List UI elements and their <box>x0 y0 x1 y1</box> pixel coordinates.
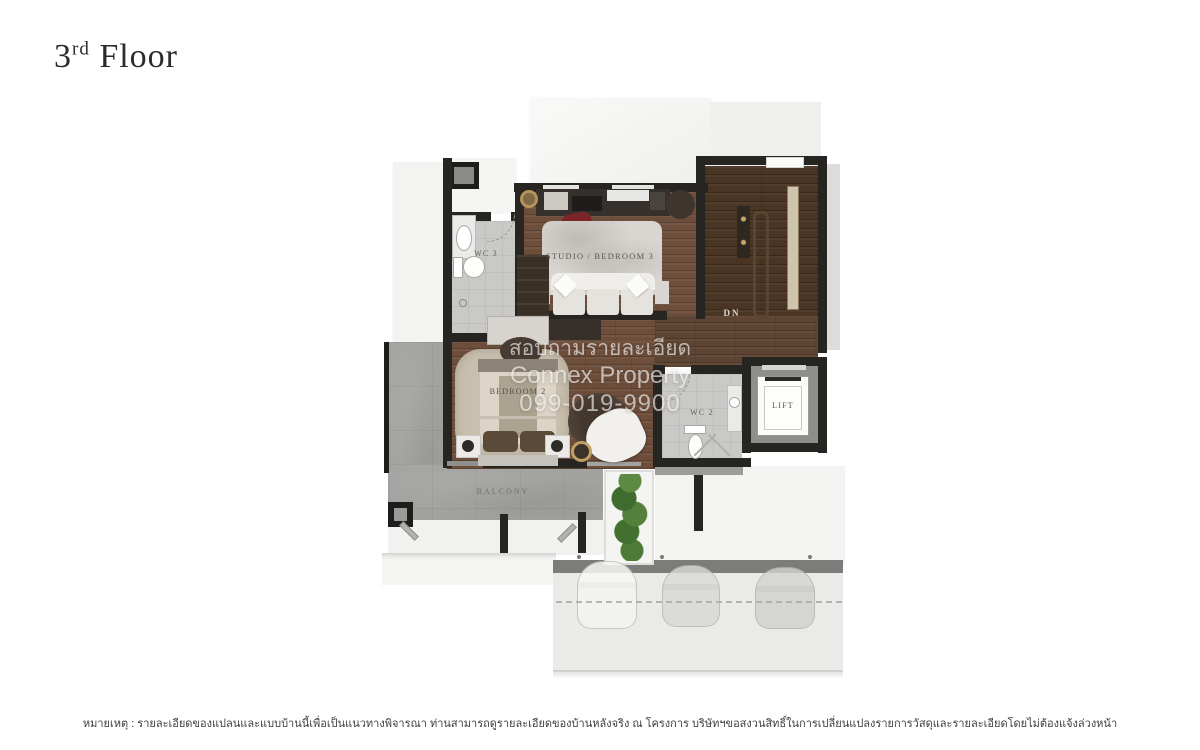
planter-greenery <box>610 474 650 561</box>
keyboard <box>572 196 602 211</box>
roof-left-wing <box>393 162 445 344</box>
room-label-studio-bedroom3: STUDIO / BEDROOM 3 <box>535 251 665 261</box>
watermark-line-phone: 099-019-9900 <box>440 390 760 418</box>
duct-shaft-box <box>449 162 479 189</box>
column-dot <box>808 555 812 559</box>
shower-drain <box>459 299 467 307</box>
planter-box <box>604 470 654 565</box>
title-number: 3 <box>54 38 72 75</box>
car-top-view <box>755 567 815 629</box>
wall <box>698 156 827 165</box>
building-side-strip <box>827 164 840 350</box>
room-label-wc3: WC 3 <box>458 249 514 258</box>
wall <box>653 458 751 467</box>
bed-pillow <box>483 431 518 452</box>
room-label-stairs-dn: DN <box>714 308 750 318</box>
wall <box>818 357 827 453</box>
sofa-cushion <box>587 289 619 315</box>
column-dot <box>577 555 581 559</box>
wardrobe <box>517 255 549 317</box>
driveway-shadow <box>553 670 843 679</box>
watermark-line-brand: Connex Property <box>440 362 760 390</box>
desk-item <box>544 192 568 210</box>
car-top-view <box>662 565 720 627</box>
bed-bench <box>478 455 558 466</box>
room-label-balcony: BALCONY <box>460 487 546 496</box>
wall-stub <box>578 512 586 553</box>
desk-item <box>650 192 665 210</box>
washbasin <box>456 225 472 251</box>
car-top-view <box>577 561 637 629</box>
plan-tag-box <box>766 157 804 168</box>
terrace-edge-band <box>655 467 743 475</box>
side-table-gold <box>520 190 538 208</box>
lift-door-gap <box>762 365 806 370</box>
accent-table <box>571 441 592 462</box>
toilet-tank <box>684 425 706 434</box>
toilet-tank <box>453 257 463 278</box>
room-label-lift: LIFT <box>757 401 809 410</box>
footer-disclaimer: หมายเหตุ : รายละเอียดของแปลนและแบบบ้านนี… <box>0 714 1200 732</box>
wall <box>696 156 705 319</box>
desk-item <box>607 190 649 201</box>
floor-plan-page: 3rd Floor <box>0 0 1200 750</box>
plot-dashed-line <box>556 601 842 603</box>
wall-stub <box>694 467 703 531</box>
page-title: 3rd Floor <box>54 38 178 76</box>
balcony-railing <box>384 342 389 473</box>
terrace-lower-right <box>655 466 845 565</box>
stair-handrail <box>753 211 769 318</box>
roof-upper-main <box>531 98 711 186</box>
toilet-bowl <box>463 256 485 278</box>
table-lamp <box>551 440 563 452</box>
wall <box>443 158 452 468</box>
wall <box>818 156 827 353</box>
table-lamp <box>462 440 474 452</box>
watermark-line-thai: สอบถามรายละเอียด <box>440 336 760 362</box>
title-word: Floor <box>99 38 178 75</box>
wall-stub <box>500 514 508 553</box>
round-ottoman <box>666 190 695 219</box>
lower-slab-left <box>382 553 556 585</box>
title-ordinal: rd <box>72 39 90 60</box>
wall-console <box>737 206 750 258</box>
sofa-side-table <box>655 281 669 304</box>
wall <box>742 443 827 452</box>
stair-screen-rail <box>787 186 799 310</box>
sliding-glass-door <box>587 462 641 466</box>
column-dot <box>660 555 664 559</box>
watermark: สอบถามรายละเอียด Connex Property 099-019… <box>440 336 760 418</box>
lift-door <box>765 377 801 381</box>
